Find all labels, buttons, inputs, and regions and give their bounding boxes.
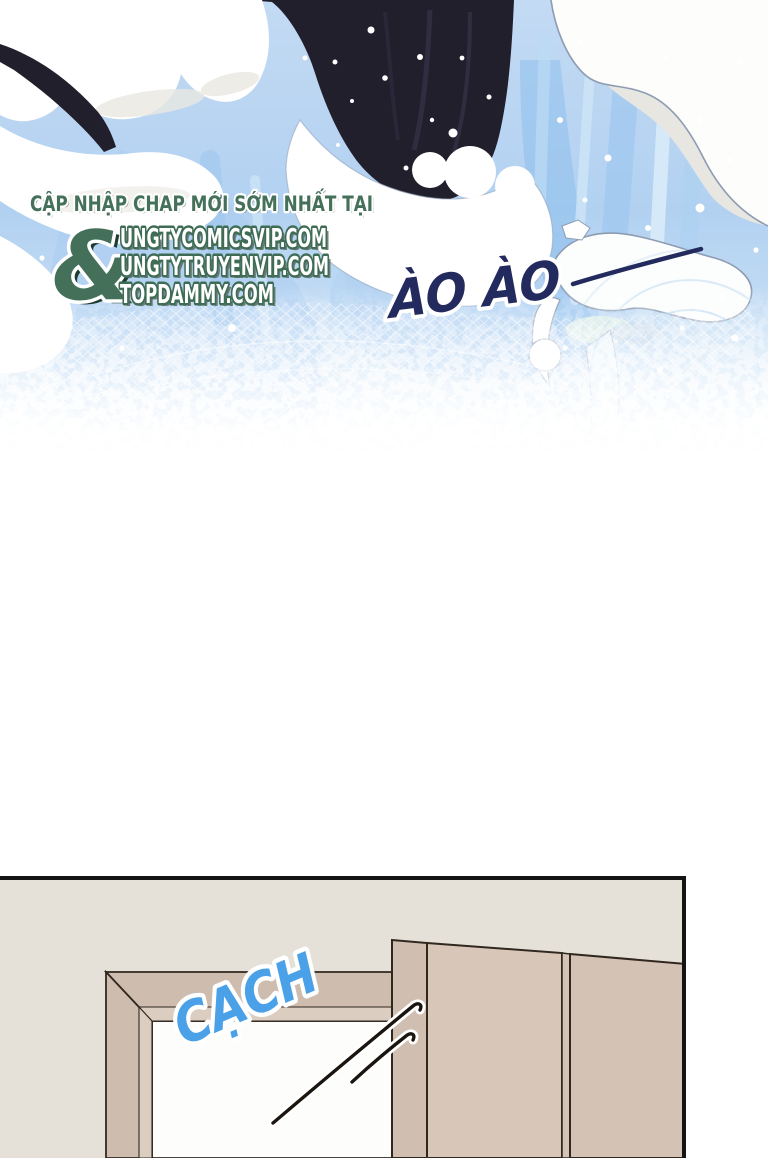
wave-art: CẬP NHẬP CHAP MỚI SỚM NHẤT TẠI CẬP NHẬP … (0, 0, 768, 470)
door (392, 940, 686, 1158)
watermark-site-1: UNGTYCOMICSVIP.COM (120, 224, 327, 254)
watermark-site-3: TOPDAMMY.COM (120, 280, 274, 310)
door-face-right (570, 954, 686, 1158)
comic-page: CẬP NHẬP CHAP MỚI SỚM NHẤT TẠI CẬP NHẬP … (0, 0, 768, 1158)
door-face (427, 943, 562, 1158)
watermark-site-2: UNGTYTRUYENVIP.COM (120, 252, 329, 282)
door-panel: CẠCH (0, 874, 686, 1158)
door-edge (392, 940, 427, 1158)
